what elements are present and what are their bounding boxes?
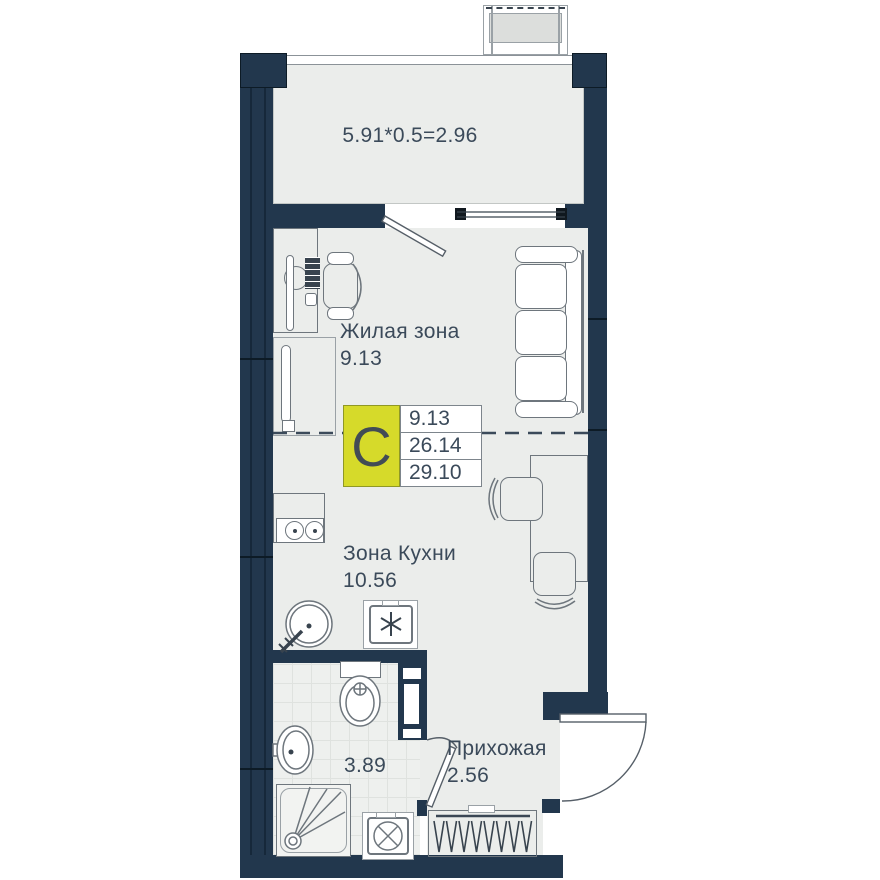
hangers-icon bbox=[434, 821, 532, 852]
snowflake-icon bbox=[381, 612, 401, 636]
bathroom-area-label: 3.89 bbox=[344, 752, 386, 779]
dining-chair-2-back-arcs bbox=[535, 598, 575, 609]
living-zone-name: Жилая зона bbox=[340, 318, 460, 345]
desk-chair-armrest-arc bbox=[353, 264, 361, 310]
living-zone-label: Жилая зона 9.13 bbox=[340, 318, 460, 372]
kitchen-sink-drain-dot bbox=[307, 624, 312, 629]
entry-door-arc bbox=[562, 722, 646, 801]
shower-spray-lines bbox=[293, 787, 345, 841]
kitchen-zone-name: Зона Кухни bbox=[343, 540, 456, 567]
window-glass-lines bbox=[457, 212, 565, 217]
living-zone-area: 9.13 bbox=[340, 345, 460, 372]
dining-chair-1-back-arcs bbox=[489, 478, 498, 520]
hallway-name: Прихожая bbox=[447, 735, 547, 762]
washbasin-drain-dot bbox=[289, 750, 294, 755]
balcony-area-label: 5.91*0.5=2.96 bbox=[320, 122, 500, 149]
balcony-door-leaf bbox=[382, 216, 446, 256]
hallway-area: 2.56 bbox=[447, 762, 547, 789]
hallway-label: Прихожая 2.56 bbox=[447, 735, 547, 789]
balcony-door-leaf-rect bbox=[382, 216, 446, 256]
kitchen-zone-area: 10.56 bbox=[343, 567, 456, 594]
shower-drain-outer bbox=[285, 833, 301, 849]
kitchen-zone-label: Зона Кухни 10.56 bbox=[343, 540, 456, 594]
floor-plan: С 9.13 26.14 29.10 bbox=[0, 0, 880, 880]
entry-door-leaf bbox=[560, 714, 646, 722]
